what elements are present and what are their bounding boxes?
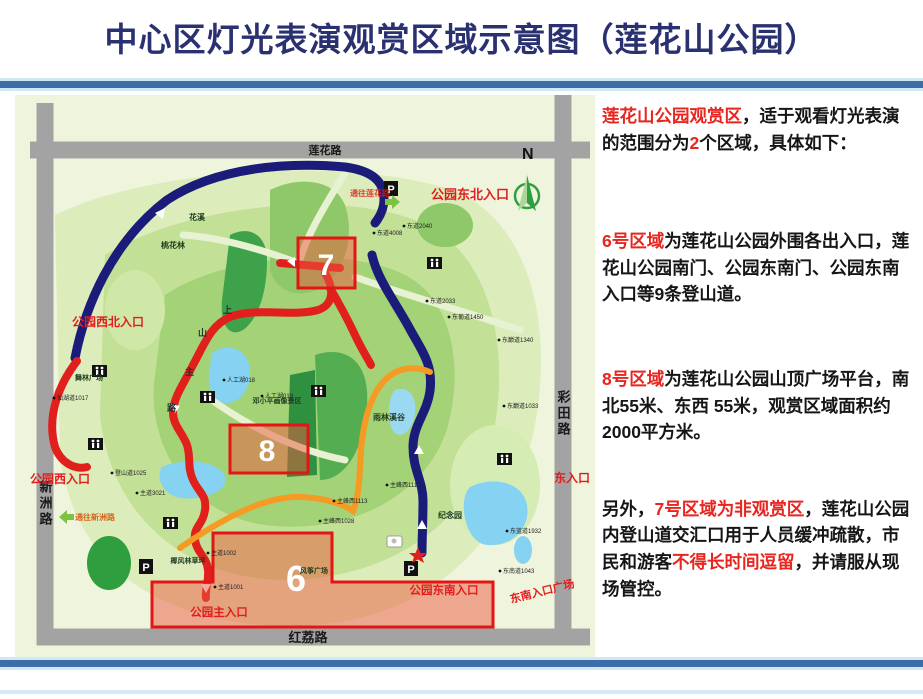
trail-marker-label: 东葡道1450 [452, 313, 484, 321]
trail-marker-label: 东道2033 [430, 297, 456, 305]
park-map-svg: 7 8 6 P P P [15, 95, 595, 658]
trail-marker-label: 主道1002 [211, 549, 237, 557]
region-7-number: 7 [318, 249, 335, 282]
page-title: 中心区灯光表演观赏区域示意图（莲花山公园） [0, 13, 923, 61]
footer-faint-bar [0, 690, 923, 694]
entrance-label-east: 东入口 [554, 470, 590, 485]
trail-marker-label: 登山道1025 [115, 469, 147, 477]
place-yefeng-lawn: 椰风林草坪 [171, 556, 206, 565]
slide: { "title": "中心区灯光表演观赏区域示意图（莲花山公园）", "col… [0, 0, 923, 699]
highlight-zone7: 7号区域为非观赏区 [655, 499, 805, 519]
trail-marker-dot [207, 552, 210, 555]
highlight-zone6: 6号区域 [602, 231, 664, 251]
parking-icon-southwest: P [139, 559, 153, 574]
highlight-zone8: 8号区域 [602, 369, 664, 389]
trail-marker-dot [498, 339, 501, 342]
place-fengzheng-plaza: 风筝广场 [300, 566, 328, 575]
svg-text:P: P [407, 564, 414, 576]
entrance-label-west: 公园西入口 [30, 472, 90, 486]
trail-marker-label: 主道3021 [140, 489, 166, 497]
info-paragraph-overview: 莲花山公园观赏区，适于观看灯光表演的范围分为2个区域，具体如下： [602, 103, 916, 156]
trail-marker-label: 东道4008 [377, 229, 403, 237]
place-huaxi: 花溪 [189, 212, 206, 222]
mountain-road-char: 主 [185, 366, 194, 377]
highlight-viewing-area: 莲花山公园观赏区 [602, 106, 742, 126]
compass-n-label: N [522, 146, 534, 163]
footer-divider-bar [0, 657, 923, 670]
trail-marker-label: 人工湖019 [265, 392, 294, 400]
info-paragraph-zone8: 8号区域为莲花山公园山顶广场平台，南北55米、东西 55米，观赏区域面积约200… [602, 366, 916, 446]
trail-marker-dot [403, 225, 406, 228]
restroom-icon [163, 517, 178, 529]
trail-marker-label: 东巅道1033 [507, 402, 539, 410]
info-paragraph-zone7: 另外，7号区域为非观赏区，莲花山公园内登山道交汇口用于人员缓冲疏散，市民和游客不… [602, 496, 916, 602]
trail-marker-dot [223, 379, 226, 382]
place-wulin-plaza: 舞林广场 [75, 373, 103, 382]
trail-marker-label: 东南道1043 [503, 567, 535, 575]
restroom-icon [88, 438, 103, 450]
entrance-label-northeast: 公园东北入口 [431, 187, 509, 202]
trail-marker-dot [426, 300, 429, 303]
sign-to-xinzhou: 通往新洲路 [75, 512, 116, 522]
restroom-icon [497, 453, 512, 465]
park-map: 7 8 6 P P P [15, 95, 595, 658]
road-label-hongli: 红荔路 [288, 630, 328, 645]
trail-marker-dot [261, 395, 264, 398]
trail-marker-dot [503, 405, 506, 408]
trail-marker-dot [136, 492, 139, 495]
trail-marker-dot [386, 484, 389, 487]
trail-marker-dot [53, 397, 56, 400]
camera-icon [387, 536, 402, 547]
trail-marker-label: 主峰西1113 [337, 497, 368, 505]
trail-marker-label: 东道2040 [407, 222, 433, 230]
highlight-count: 2 [690, 133, 700, 153]
trail-marker-label: 主峰西1112 [390, 481, 421, 489]
trail-marker-dot [319, 520, 322, 523]
trail-marker-dot [448, 316, 451, 319]
mountain-road-char: 上 [223, 304, 232, 315]
info-panel: 莲花山公园观赏区，适于观看灯光表演的范围分为2个区域，具体如下： 6号区域为莲花… [602, 103, 916, 602]
entrance-label-main: 公园主入口 [190, 605, 248, 619]
place-jinianyuan: 纪念园 [438, 510, 462, 520]
road-label-caitian: 彩田路 [556, 389, 572, 438]
trail-marker-dot [333, 500, 336, 503]
trail-marker-label: 东蓝道1932 [510, 527, 542, 535]
road-label-lianhua: 莲花路 [309, 143, 343, 157]
trail-marker-label: 主道1001 [218, 583, 244, 591]
restroom-icon [427, 257, 442, 269]
trail-marker-label: 人工湖018 [227, 376, 256, 384]
trail-marker-dot [214, 586, 217, 589]
place-yulin-valley: 雨林溪谷 [373, 412, 406, 422]
info-paragraph-zone6: 6号区域为莲花山公园外围各出入口，莲花山公园南门、公园东南门、公园东南入口等9条… [602, 228, 916, 308]
trail-marker-dot [111, 472, 114, 475]
trail-marker-label: 主峰西1028 [323, 517, 355, 525]
entrance-label-northwest: 公园西北入口 [72, 314, 144, 329]
restroom-icon [311, 385, 326, 397]
trail-marker-label: 仙湖道1017 [57, 394, 89, 402]
entrance-label-southeast: 公园东南入口 [410, 583, 479, 597]
svg-text:P: P [142, 562, 149, 574]
highlight-no-stay: 不得长时间逗留 [672, 552, 795, 572]
road-label-xinzhou: 新洲路 [38, 479, 53, 528]
mountain-road-char: 路 [167, 402, 177, 413]
restroom-icon [200, 391, 215, 403]
trail-marker-label: 东巅道1340 [502, 336, 534, 344]
mountain-road-char: 山 [198, 327, 207, 338]
region-6-number: 6 [286, 558, 306, 599]
header-divider-bar [0, 78, 923, 91]
text-segment: 个区域，具体如下： [699, 133, 857, 153]
text-segment: 另外， [602, 499, 655, 519]
trail-marker-dot [499, 570, 502, 573]
trail-marker-dot [373, 232, 376, 235]
region-8-number: 8 [259, 435, 276, 468]
place-taohualin: 桃花林 [161, 240, 185, 250]
trail-marker-dot [506, 530, 509, 533]
parking-icon-south: P [404, 561, 418, 576]
sign-to-lianhua: 通往莲花路 [350, 188, 391, 198]
